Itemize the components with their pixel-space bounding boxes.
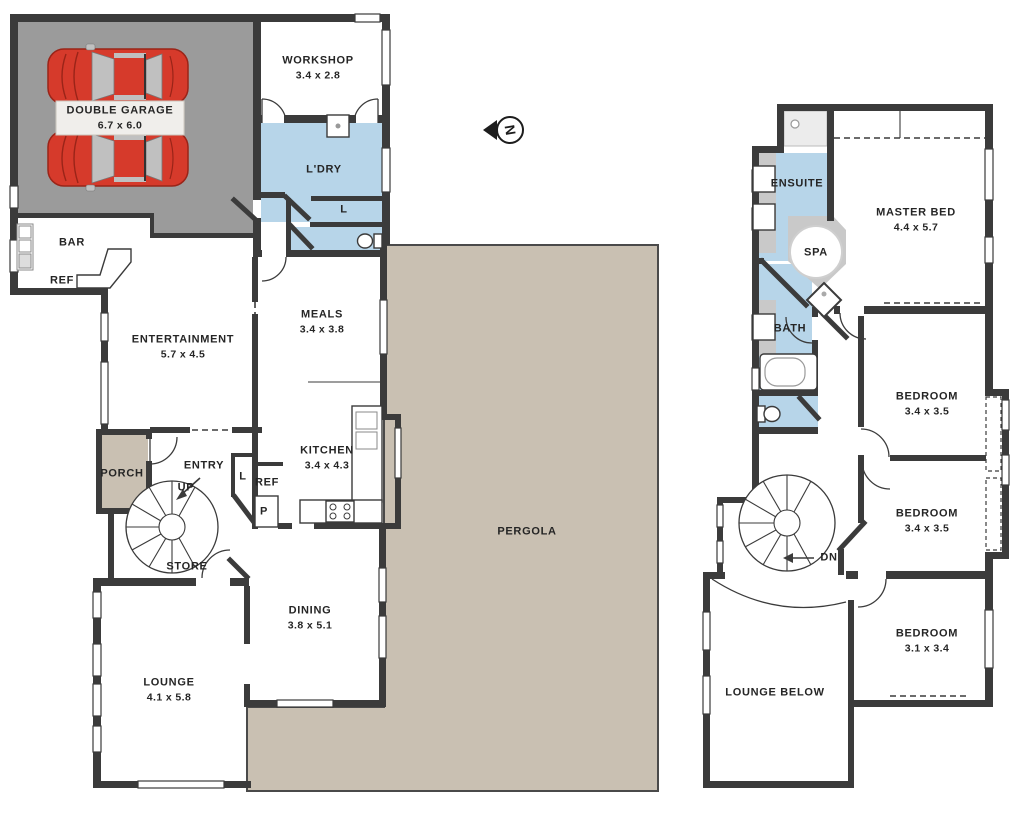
first-windows: [703, 149, 1009, 714]
room-label-store: STORE: [166, 560, 207, 575]
room-label-linen-upper: L: [340, 203, 347, 218]
room-label-ldry: L'DRY: [306, 163, 342, 178]
north-arrow-icon: N: [483, 117, 523, 143]
bathtub-icon: [760, 354, 817, 390]
label-dn: DN: [820, 551, 837, 566]
bar-sink-cabinet: [17, 224, 33, 270]
room-label-double-garage: DOUBLE GARAGE6.7 x 6.0: [56, 100, 185, 135]
room-label-pantry: P: [260, 505, 268, 520]
room-label-bedroom-3: BEDROOM3.1 x 3.4: [896, 626, 958, 655]
room-label-bath: BATH: [774, 322, 807, 337]
label-up: UP: [178, 481, 195, 496]
room-label-linen-entry: L: [239, 470, 246, 485]
car-icon-2: [48, 126, 188, 191]
room-label-entertainment: ENTERTAINMENT5.7 x 4.5: [132, 332, 234, 361]
room-label-kitchen: KITCHEN3.4 x 4.3: [300, 443, 354, 472]
room-label-entry: ENTRY: [184, 459, 224, 474]
room-label-bedroom-1: BEDROOM3.4 x 3.5: [896, 389, 958, 418]
room-label-ensuite: ENSUITE: [771, 177, 824, 192]
laundry-trough-icon: [327, 115, 349, 137]
room-label-lounge-below: LOUNGE BELOW: [725, 686, 824, 701]
shower: [784, 111, 827, 146]
car-icon-1: [48, 44, 188, 109]
room-label-dining: DINING3.8 x 5.1: [288, 603, 332, 632]
room-label-porch: PORCH: [100, 467, 143, 482]
floor-plan-page: N DOUBLE GARAGE6.7 x 6.0 WORKSHOP3.4 x 2…: [0, 0, 1024, 813]
room-label-meals: MEALS3.4 x 3.8: [300, 307, 344, 336]
room-label-spa: SPA: [804, 246, 828, 261]
toilet-icon-first: [757, 406, 780, 422]
room-label-bedroom-2: BEDROOM3.4 x 3.5: [896, 506, 958, 535]
room-label-bar: BAR: [59, 236, 85, 251]
room-label-pergola: PERGOLA: [497, 525, 556, 540]
toilet-icon-ground: [358, 234, 383, 248]
room-label-lounge: LOUNGE4.1 x 5.8: [143, 675, 194, 704]
bar-counter: [77, 249, 131, 288]
room-label-ref-bar: REF: [50, 274, 74, 289]
room-label-ref-kitchen: REF: [255, 476, 279, 491]
room-label-workshop: WORKSHOP3.4 x 2.8: [282, 53, 354, 82]
cooktop-icon: [326, 501, 354, 522]
room-label-master-bed: MASTER BED4.4 x 5.7: [876, 205, 956, 234]
